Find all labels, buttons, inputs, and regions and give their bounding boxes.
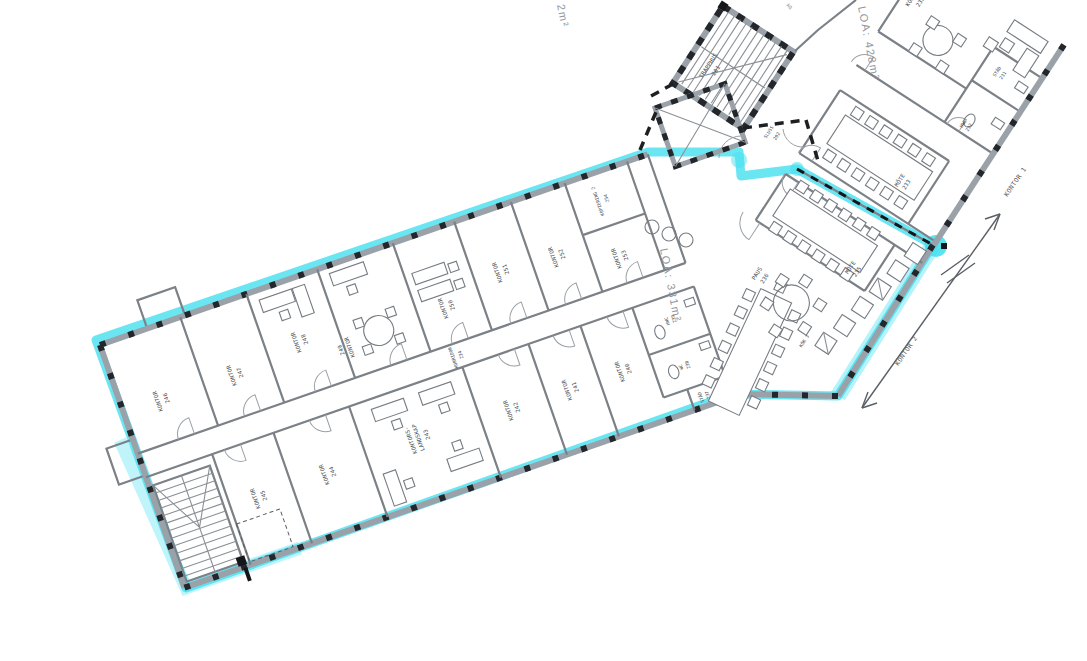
chair	[769, 221, 783, 235]
floor-plan-page: KONTOR 246 KONTOR 247 KONTOR 248 KONTOR …	[0, 0, 1087, 661]
sink	[699, 341, 711, 351]
chair	[879, 125, 893, 139]
room-label: KORRIDOR	[447, 346, 459, 369]
room-label: KONTOR	[151, 390, 164, 413]
wall-fragments-top	[795, 0, 856, 51]
room-number: 230	[915, 0, 926, 8]
room-number: 244	[328, 465, 337, 477]
chair	[851, 168, 865, 182]
sink	[684, 297, 696, 307]
chair	[763, 361, 776, 374]
room-number: 250	[447, 299, 456, 311]
room-label-kok: KÖK 3	[797, 333, 810, 348]
chair	[826, 258, 840, 272]
chair	[394, 333, 405, 344]
chair	[353, 317, 364, 328]
room-number: 251	[501, 263, 510, 275]
room-label: KONTOR	[560, 379, 573, 402]
room-number: 231	[999, 70, 1008, 80]
section-label-kontor1: KONTOR 1	[1002, 166, 1028, 198]
chair	[797, 240, 811, 254]
round-table	[917, 20, 958, 61]
desk	[418, 382, 454, 405]
chair	[837, 158, 851, 172]
room-label: KOPIERING 2	[590, 186, 605, 217]
room-label: WC	[678, 363, 685, 370]
room-label: KONTOR	[610, 247, 623, 270]
section-label-kontor2: KONTOR 2	[893, 335, 919, 367]
wing-a: KONTOR 246 KONTOR 247 KONTOR 248 KONTOR …	[64, 126, 737, 611]
room-number: 236	[759, 272, 770, 284]
chair	[772, 344, 785, 357]
room-number: 247	[235, 366, 244, 378]
area-label-331: LOA: 331m²	[658, 247, 684, 323]
chair	[823, 149, 837, 163]
chair	[865, 177, 879, 191]
chair	[755, 379, 768, 392]
chair	[894, 195, 908, 209]
floor-plan-canvas: KONTOR 246 KONTOR 247 KONTOR 248 KONTOR …	[0, 0, 1087, 661]
chair	[811, 249, 825, 263]
chair	[404, 478, 415, 489]
chair	[880, 186, 894, 200]
room-number: 202	[772, 131, 781, 141]
chair	[907, 143, 921, 157]
section-ticks	[941, 255, 975, 283]
chair	[734, 306, 747, 319]
chair	[385, 306, 396, 317]
room-number: 252	[557, 248, 566, 260]
room-label: KONTOR	[290, 331, 303, 354]
chair	[922, 153, 936, 167]
room-number: 254	[603, 193, 611, 203]
desk	[371, 398, 407, 421]
chair	[439, 402, 450, 413]
long-table	[827, 115, 933, 200]
chair	[953, 33, 967, 47]
room-number: 246	[162, 392, 171, 404]
chair	[702, 375, 715, 388]
room-label: KONTOR	[547, 246, 560, 269]
chair	[799, 274, 813, 288]
chair	[865, 116, 879, 130]
sink	[991, 117, 1005, 130]
sink	[1015, 81, 1029, 94]
chair	[718, 340, 731, 353]
room-number: 240	[624, 363, 633, 375]
round-table	[360, 311, 398, 349]
room-label: KONTOR	[318, 463, 331, 486]
chair	[813, 298, 827, 312]
chair	[279, 309, 290, 320]
room-number: 232	[965, 122, 974, 132]
chair	[362, 344, 373, 355]
room-number: 238	[684, 360, 692, 370]
kitchen-counter	[851, 296, 873, 318]
chair	[783, 231, 797, 245]
chair	[726, 323, 739, 336]
chair	[999, 38, 1014, 53]
highlight-blob-3	[731, 152, 747, 168]
room-number: 241	[571, 381, 580, 393]
room-number: 245	[259, 490, 268, 502]
area-label-428: LOA: 428m²	[856, 5, 882, 81]
room-label: KONTOR	[249, 487, 262, 510]
desk	[447, 448, 483, 471]
room-label: KONTOR	[436, 297, 449, 320]
room-number: 201	[710, 64, 721, 76]
room-number: 234	[457, 350, 465, 360]
toilet	[653, 324, 667, 341]
chair	[935, 60, 949, 74]
drawing-fragment-text: Ag	[785, 2, 794, 11]
room-label: KONTOR	[491, 261, 504, 284]
room-label: KONTOR	[225, 364, 238, 387]
room-label: KONTOR	[502, 399, 515, 422]
waiting-chair	[679, 233, 693, 247]
room-number: 243	[422, 429, 431, 441]
chair	[448, 261, 459, 272]
desk	[383, 470, 406, 506]
room-number: 253	[620, 249, 629, 261]
room-number: 248	[300, 333, 309, 345]
chair	[742, 289, 755, 302]
section-origin-marker	[941, 243, 947, 249]
area-label-partial: 2m²	[555, 3, 571, 29]
chair	[452, 440, 463, 451]
desk	[259, 289, 295, 312]
chair	[850, 106, 864, 120]
kitchen-counter	[834, 315, 856, 337]
chair	[391, 418, 402, 429]
chair	[926, 16, 940, 30]
chair	[908, 43, 922, 57]
highlight-smudge-2	[120, 440, 300, 588]
room-label: KONTOR	[613, 360, 626, 383]
room-number: 242	[512, 401, 521, 413]
chair	[893, 134, 907, 148]
chair	[798, 321, 812, 335]
chair	[347, 284, 358, 295]
waiting-chair	[662, 227, 676, 241]
chair	[454, 278, 465, 289]
